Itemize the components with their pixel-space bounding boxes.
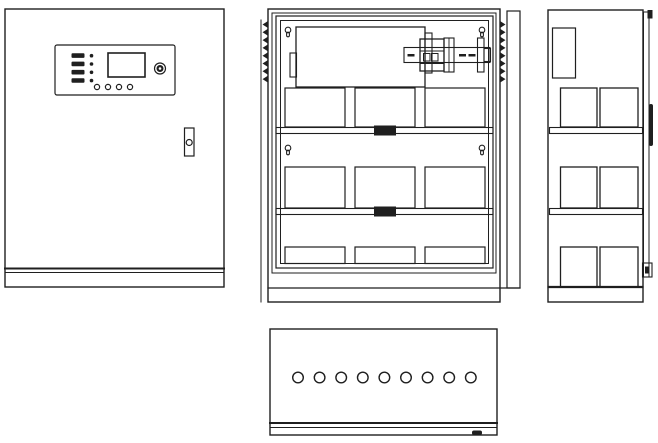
louver-slat-right	[500, 29, 506, 36]
louver-slat-right	[500, 52, 506, 59]
louver-slat-right	[500, 76, 506, 83]
terminal-block	[374, 126, 396, 136]
battery-block	[425, 247, 485, 264]
power-module	[296, 27, 425, 87]
led-label-bar	[72, 78, 85, 83]
enclosure-inner-offset-frame	[272, 13, 496, 273]
cable-entry-hole	[401, 372, 412, 383]
cable-entry-hole	[358, 372, 369, 383]
mounting-frame-outer	[276, 16, 493, 268]
louver-slat-left	[263, 68, 269, 75]
louver-slat-left	[263, 44, 269, 51]
led-indicator-icon	[90, 62, 94, 66]
front-cabinet-body	[5, 9, 224, 287]
led-label-bar	[72, 70, 85, 75]
cable-entry-hole	[293, 372, 304, 383]
louver-slat-left	[263, 21, 269, 28]
side-battery-shelf	[550, 209, 643, 215]
buzzer-icon	[155, 63, 166, 74]
led-indicator-icon	[90, 71, 94, 75]
panel-button	[116, 84, 121, 89]
cable-entry-hole	[444, 372, 455, 383]
internal-view	[261, 9, 520, 302]
power-cabinet-drawing	[0, 0, 658, 443]
door-lock-keyhole-icon	[186, 140, 192, 146]
terminal-mark-left	[408, 54, 415, 57]
louver-slat-left	[263, 60, 269, 67]
side-battery-block	[600, 88, 638, 127]
cable-entry-hole	[314, 372, 325, 383]
louver-slat-right	[500, 37, 506, 44]
battery-block	[425, 88, 485, 127]
side-view	[548, 10, 653, 302]
side-door-bottom-bracket-mark	[645, 267, 650, 274]
led-label-bar	[72, 53, 85, 58]
panel-button	[105, 84, 110, 89]
enclosure-outer-frame	[268, 9, 500, 302]
louver-slat-right	[500, 21, 506, 28]
led-label-bar	[72, 62, 85, 67]
side-door-handle	[649, 104, 653, 146]
battery-block	[425, 167, 485, 208]
battery-block	[355, 88, 415, 127]
cable-entry-hole	[466, 372, 477, 383]
panel-button	[94, 84, 99, 89]
buzzer-inner-ring	[158, 66, 163, 71]
louver-slat-right	[500, 60, 506, 67]
battery-block	[355, 247, 415, 264]
side-cabinet-body	[548, 10, 643, 302]
panel-button	[127, 84, 132, 89]
side-door-edge	[644, 12, 650, 277]
side-battery-shelf	[550, 128, 643, 134]
rail-end-stop	[478, 38, 485, 72]
open-door-panel	[507, 11, 520, 288]
battery-block	[355, 167, 415, 208]
bottom-view	[270, 329, 497, 435]
bottom-plate-body	[270, 329, 497, 435]
led-indicator-icon	[90, 79, 94, 83]
side-battery-block	[561, 88, 598, 127]
cable-entry-hole	[422, 372, 433, 383]
louver-slat-left	[263, 29, 269, 36]
mounting-frame-inner	[281, 21, 489, 264]
side-battery-block	[561, 247, 598, 287]
led-indicator-icon	[90, 54, 94, 58]
battery-block	[285, 88, 345, 127]
louver-slat-left	[263, 52, 269, 59]
technical-drawing-page	[0, 0, 658, 443]
battery-block	[285, 247, 345, 264]
terminal-mark-right-2	[469, 54, 476, 57]
louver-slat-right	[500, 44, 506, 51]
side-battery-block	[600, 247, 638, 287]
front-view	[5, 9, 224, 287]
louver-slat-right	[500, 68, 506, 75]
cable-entry-hole	[336, 372, 347, 383]
side-power-module	[553, 28, 576, 78]
lcd-display	[108, 53, 145, 77]
din-rail-circuit-breaker	[404, 38, 491, 72]
louver-slat-left	[263, 76, 269, 83]
battery-block	[285, 167, 345, 208]
side-battery-block	[561, 167, 598, 208]
side-door-top-cap	[648, 10, 653, 19]
cable-entry-hole	[379, 372, 390, 383]
side-battery-block	[600, 167, 638, 208]
terminal-mark-right-1	[459, 54, 466, 57]
bottom-stud	[472, 431, 482, 436]
terminal-block	[374, 207, 396, 217]
louver-slat-left	[263, 37, 269, 44]
